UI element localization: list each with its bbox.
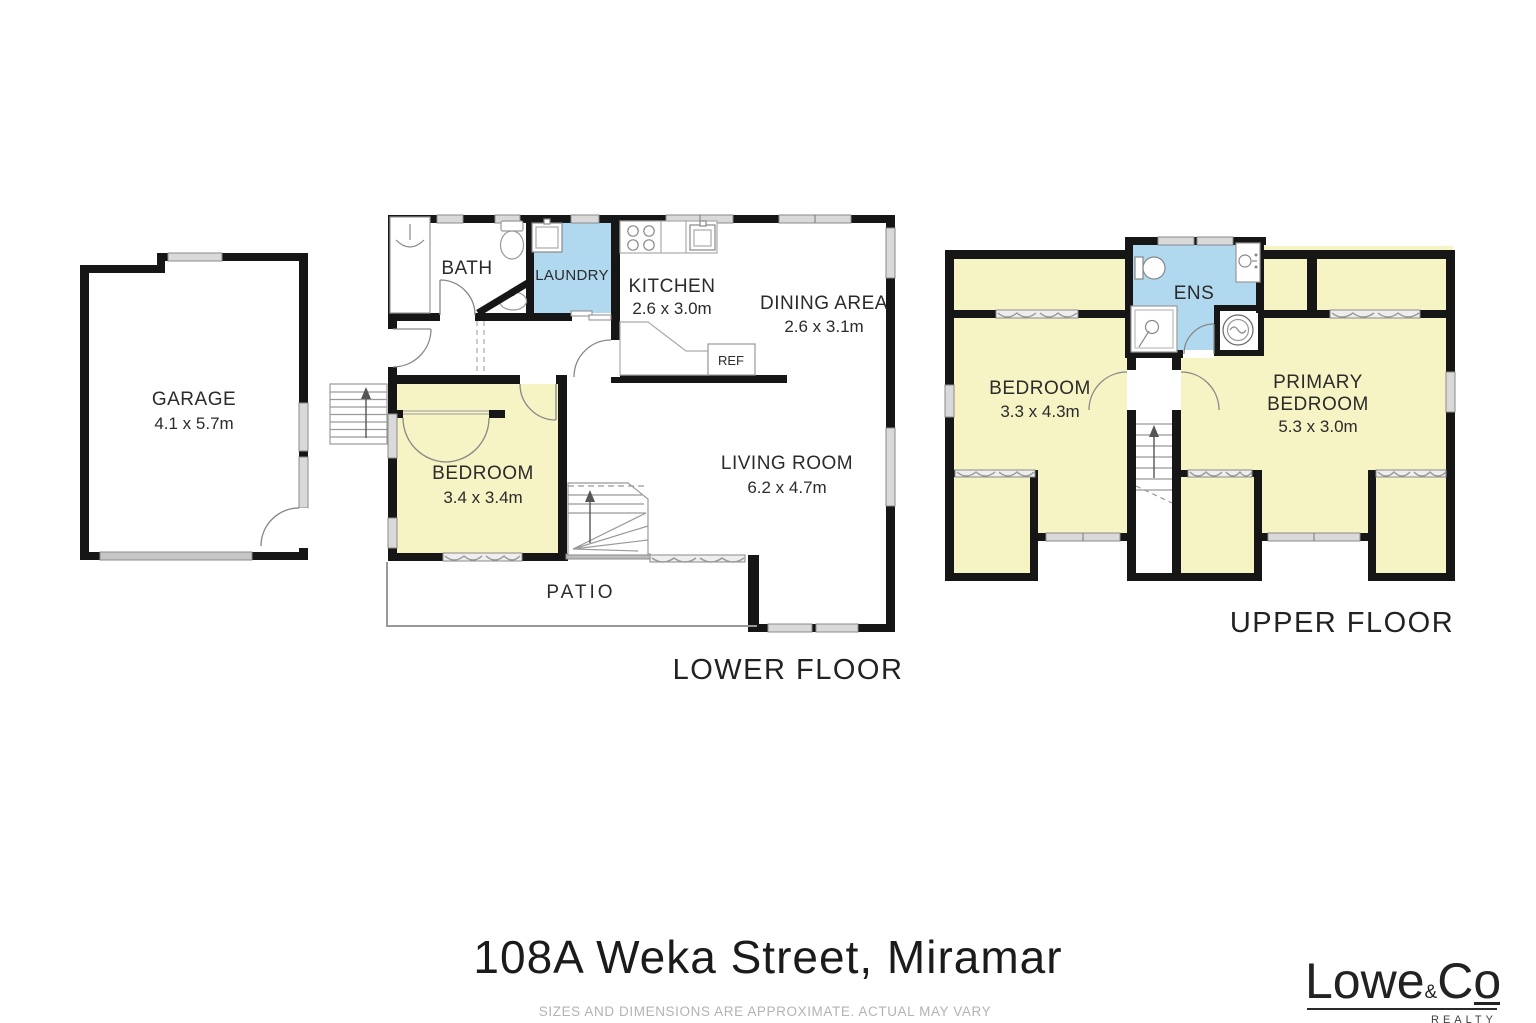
- brand-word1: Lowe: [1305, 953, 1425, 1009]
- living-label: LIVING ROOM: [721, 453, 853, 474]
- disclaimer-text: SIZES AND DIMENSIONS ARE APPROXIMATE. AC…: [0, 1004, 1530, 1019]
- fridge-label: REF: [718, 353, 744, 368]
- lower-floor-title: LOWER FLOOR: [673, 654, 904, 686]
- living-dims: 6.2 x 4.7m: [747, 478, 826, 497]
- toilet-icon: [501, 221, 523, 231]
- dining-label: DINING AREA: [760, 293, 888, 314]
- bath-door-arc: [440, 280, 475, 315]
- brand-word2-o: o: [1473, 953, 1501, 1009]
- exterior-stairs-icon: [330, 384, 387, 444]
- garage-windows: [168, 253, 308, 508]
- brand-rule: [1307, 1008, 1497, 1010]
- brand-logo: Lowe&Co REALTY: [1305, 952, 1515, 1010]
- dining-dims: 2.6 x 3.1m: [784, 317, 863, 336]
- primary-dims: 5.3 x 3.0m: [1278, 417, 1357, 436]
- laundry-sink-icon: [532, 219, 562, 252]
- garage-dims: 4.1 x 5.7m: [154, 414, 233, 433]
- brand-tagline: REALTY: [1397, 1014, 1497, 1023]
- garage-label: GARAGE: [152, 389, 236, 410]
- floorplan-page: GARAGE 4.1 x 5.7m: [0, 0, 1536, 1023]
- wardrobe: [392, 381, 502, 410]
- brand-wordmark: Lowe&Co: [1305, 953, 1501, 1009]
- garage-door-arc: [261, 508, 299, 546]
- upper-stairs-icon: [1136, 424, 1172, 503]
- kitchen-fixtures: [620, 221, 755, 375]
- entry-door-arc: [393, 329, 431, 367]
- kitchen-counter-lower: [620, 322, 708, 375]
- upper-floor-title: UPPER FLOOR: [1230, 607, 1454, 639]
- ens-toilet-icon: [1135, 257, 1143, 279]
- floorplan-graphic: GARAGE 4.1 x 5.7m: [0, 0, 1536, 1023]
- bedroom2-dims: 3.3 x 4.3m: [1000, 402, 1079, 421]
- bedroom2-label: BEDROOM: [989, 378, 1091, 399]
- ens-label: ENS: [1174, 283, 1215, 304]
- garage-plan: GARAGE 4.1 x 5.7m: [80, 253, 308, 560]
- kitchen-dims: 2.6 x 3.0m: [632, 299, 711, 318]
- patio-label: PATIO: [546, 582, 615, 603]
- brand-ampersand: &: [1425, 982, 1438, 1003]
- primary-label-line2: BEDROOM: [1267, 394, 1369, 415]
- bath-label: BATH: [441, 258, 492, 279]
- lower-floor-plan: BATH LAUNDRY KITCHEN 2.6 x 3.0m DINING A…: [387, 215, 903, 686]
- laundry-label: LAUNDRY: [535, 267, 609, 284]
- brand-o-underline: [1474, 1002, 1500, 1005]
- cased-opening: [477, 321, 484, 375]
- primary-label-line1: PRIMARY: [1273, 372, 1363, 393]
- hall-living-door-arc: [574, 340, 611, 377]
- kitchen-label: KITCHEN: [629, 276, 716, 297]
- upper-floor-plan: ENS BEDROOM 3.3 x 4.3m PRIMARY BEDROOM 5…: [945, 237, 1455, 639]
- garage-vehicle-door: [100, 552, 252, 560]
- lower-stairs-icon: [568, 483, 648, 555]
- bedroom1-dims: 3.4 x 3.4m: [443, 488, 522, 507]
- bedroom1-label: BEDROOM: [432, 463, 534, 484]
- brand-word2: C: [1437, 953, 1473, 1009]
- garage-door-opening: [299, 508, 308, 548]
